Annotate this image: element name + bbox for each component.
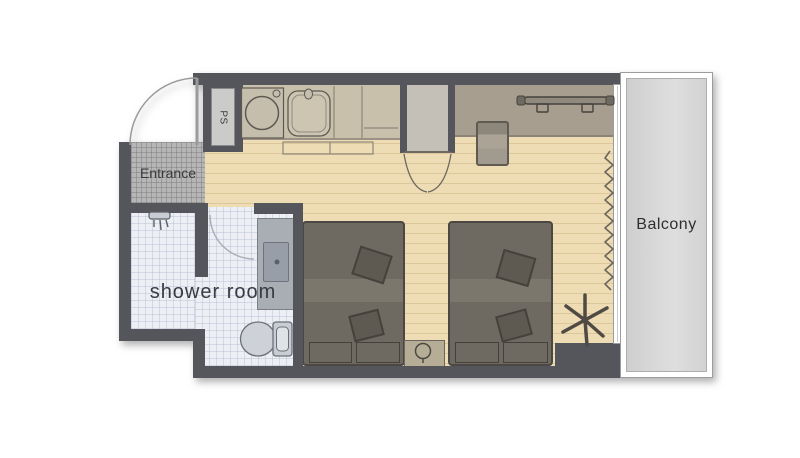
- bed-left-foot-panel: [309, 342, 352, 363]
- room-unit: Entrance: [0, 0, 800, 458]
- wall-north: [193, 73, 621, 85]
- wall-shower-jamb: [195, 203, 208, 277]
- wall-west: [119, 142, 131, 341]
- bed-right-blanket: [450, 279, 551, 302]
- balcony-window-rail: [617, 86, 618, 342]
- bed-left: [302, 221, 405, 366]
- room-entrance: Entrance: [131, 142, 205, 203]
- shower-room-floor-left: [131, 212, 205, 329]
- pipe-shaft-label: PS: [218, 110, 229, 124]
- vanity-basin: [263, 242, 289, 282]
- nightstand: [404, 340, 445, 367]
- wall-shower-east: [293, 203, 303, 370]
- bed-right-foot-panel: [503, 342, 548, 363]
- balcony-deck: Balcony: [626, 78, 707, 372]
- balcony-label: Balcony: [636, 216, 696, 234]
- pipe-shaft: PS: [211, 88, 235, 146]
- wall-southeast-block: [555, 343, 622, 378]
- bed-right-foot-panel: [455, 342, 499, 363]
- bed-right: [448, 221, 553, 366]
- bifold-closet: [400, 84, 455, 153]
- bed-left-foot-panel: [356, 342, 400, 363]
- wall-entrance-divider: [131, 203, 197, 213]
- kitchen-counter: [240, 84, 400, 140]
- room-balcony: Balcony: [620, 72, 713, 378]
- shower-room-label: shower room: [134, 281, 292, 304]
- desk-chair: [476, 121, 509, 166]
- floorplan: Entrance: [0, 0, 800, 458]
- entrance-label: Entrance: [140, 165, 196, 181]
- bed-left-blanket: [304, 279, 403, 302]
- entrance-door-icon: [130, 78, 197, 145]
